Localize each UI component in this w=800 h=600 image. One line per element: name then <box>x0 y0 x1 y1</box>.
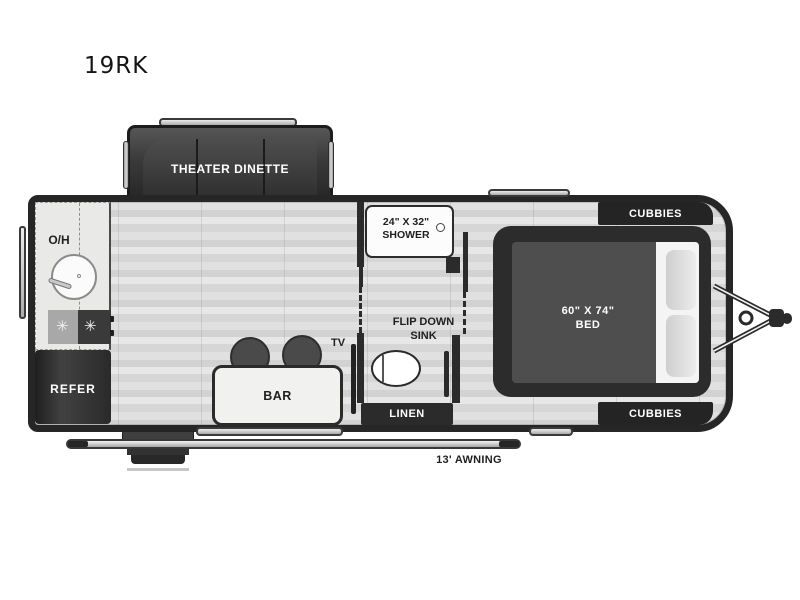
awning-end-cap <box>499 441 519 447</box>
pillow-icon <box>666 315 696 377</box>
toilet-icon <box>371 350 421 387</box>
floorplan-model-title: 19RK <box>84 53 148 79</box>
rear-grab-handle <box>19 226 26 319</box>
theater-dinette-label: THEATER DINETTE <box>130 162 330 176</box>
bath-wall-left-lower <box>357 333 364 403</box>
bath-wall-right-upper <box>463 232 468 292</box>
overhead-cabinet-label: O/H <box>38 233 80 247</box>
awning-label: 13' AWNING <box>418 454 520 466</box>
stove-burner-icon: ✳ <box>56 319 69 334</box>
flip-down-sink-icon <box>444 351 449 397</box>
roof-window-bar <box>488 189 570 197</box>
tv-icon <box>351 344 356 414</box>
entry-steps-shadow <box>127 468 189 471</box>
stove-knob-icon <box>110 316 114 322</box>
shower-drain-icon <box>436 223 445 232</box>
tv-label: TV <box>331 337 345 349</box>
shower-label: SHOWER <box>369 229 443 242</box>
kitchen-sink-icon <box>51 254 97 300</box>
slideout-left-rail <box>123 141 129 189</box>
trailer-hitch-icon <box>712 271 794 366</box>
cubbies-bottom-label: CUBBIES <box>629 408 682 420</box>
bed-size-label: 60" X 74" <box>513 304 663 318</box>
slideout-right-rail <box>328 141 334 189</box>
stove-knob-icon <box>110 330 114 336</box>
pillow-icon <box>666 250 696 310</box>
refrigerator-label: REFER <box>35 382 111 396</box>
cubbies-top-label: CUBBIES <box>629 208 682 220</box>
flip-down-sink-label-line2: SINK <box>375 330 472 344</box>
bed-label: BED <box>513 318 663 332</box>
bath-wall-right-lower <box>452 335 460 403</box>
flip-down-sink-label-line1: FLIP DOWN <box>375 316 472 330</box>
bed-mattress: 60" X 74" BED <box>512 242 699 383</box>
bar-label: BAR <box>263 389 292 403</box>
toilet-tank-line <box>382 355 384 382</box>
cubbies-top: CUBBIES <box>598 202 713 225</box>
floorplan-canvas: 19RK THEATER DINETTE O/H ✳ ✳ REFER 24" X… <box>0 0 800 600</box>
bath-door-swing-left <box>359 287 362 333</box>
entry-steps <box>131 455 185 464</box>
bar-counter: BAR <box>212 365 343 426</box>
shower-pan: 24" X 32" SHOWER <box>365 205 454 258</box>
shower-size-label: 24" X 32" <box>369 216 443 229</box>
theater-dinette-slideout: THEATER DINETTE <box>127 125 333 203</box>
refrigerator: REFER <box>35 350 111 424</box>
awning-rail <box>66 439 521 449</box>
linen-label: LINEN <box>389 408 425 420</box>
awning-end-cap <box>68 441 88 447</box>
shower-corner-wall <box>446 257 460 273</box>
exterior-handle-bar <box>529 427 573 436</box>
linen-cabinet: LINEN <box>361 403 453 425</box>
cubbies-bottom: CUBBIES <box>598 402 713 425</box>
entry-door-bar <box>196 427 343 436</box>
stove-burner-icon: ✳ <box>84 319 97 334</box>
bed-platform: 60" X 74" BED <box>493 226 711 397</box>
bath-wall-left-stub <box>359 267 363 287</box>
bath-wall-left-upper <box>357 202 364 267</box>
sink-drain-icon <box>77 274 81 278</box>
